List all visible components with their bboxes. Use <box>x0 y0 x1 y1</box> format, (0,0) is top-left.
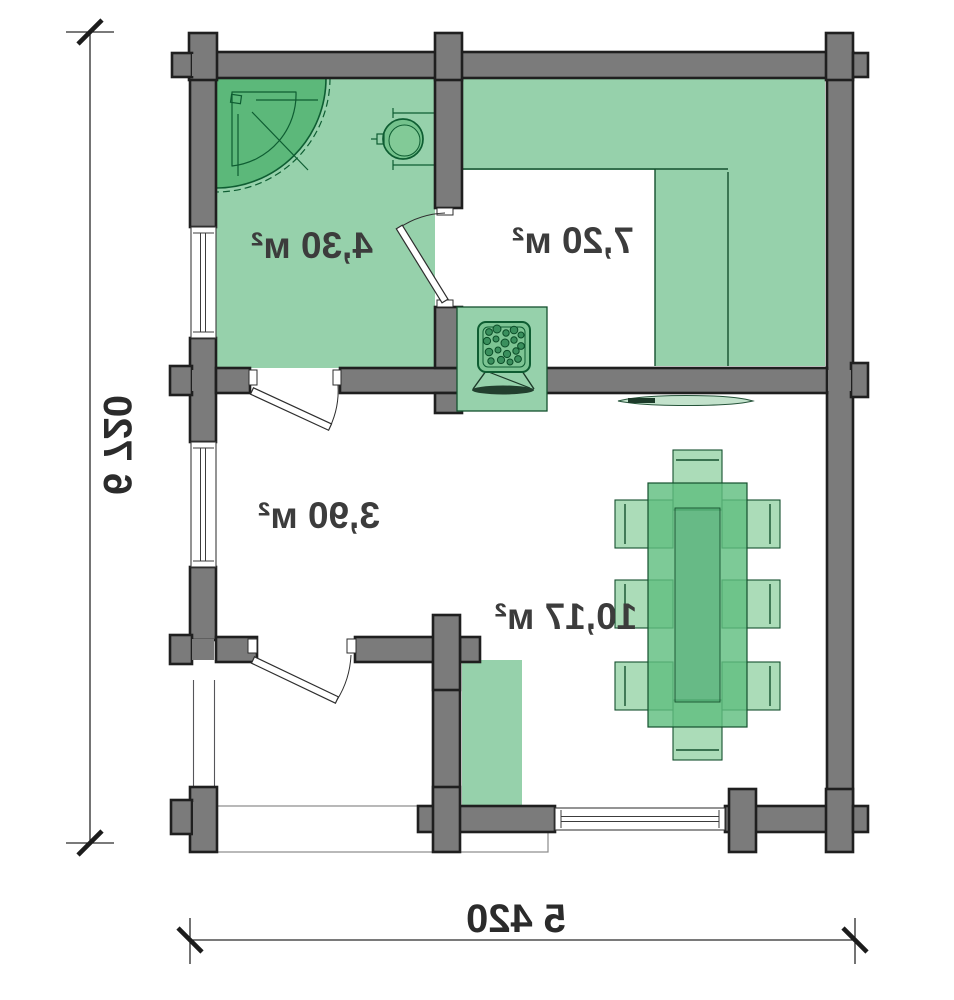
dining-set <box>615 450 780 760</box>
bathroom-area-label: 4,30 м² <box>251 225 373 266</box>
window-left-lower <box>191 442 216 567</box>
window-left-upper <box>191 227 216 338</box>
sauna-stove <box>457 307 547 411</box>
door-entrance <box>248 639 356 703</box>
cabinet <box>462 660 522 806</box>
stove-shadow <box>472 386 534 395</box>
floor-plan: 6 720 5 420 4,30 м² 7,20 м² 3,90 м² 10,1… <box>0 0 954 1000</box>
dimension-height: 6 720 <box>66 20 139 855</box>
lounge-area-label: 10,17 м² <box>495 596 638 637</box>
porch-railing <box>194 680 215 786</box>
dimension-width: 5 420 <box>178 897 867 964</box>
dimension-height-label: 6 720 <box>95 395 139 495</box>
bench-board <box>618 396 753 406</box>
sauna-area-label: 7,20 м² <box>512 220 634 261</box>
window-bottom <box>555 808 725 830</box>
dimension-width-label: 5 420 <box>466 897 566 941</box>
door-bathroom-hall <box>249 370 341 430</box>
hall-area-label: 3,90 м² <box>258 495 380 536</box>
